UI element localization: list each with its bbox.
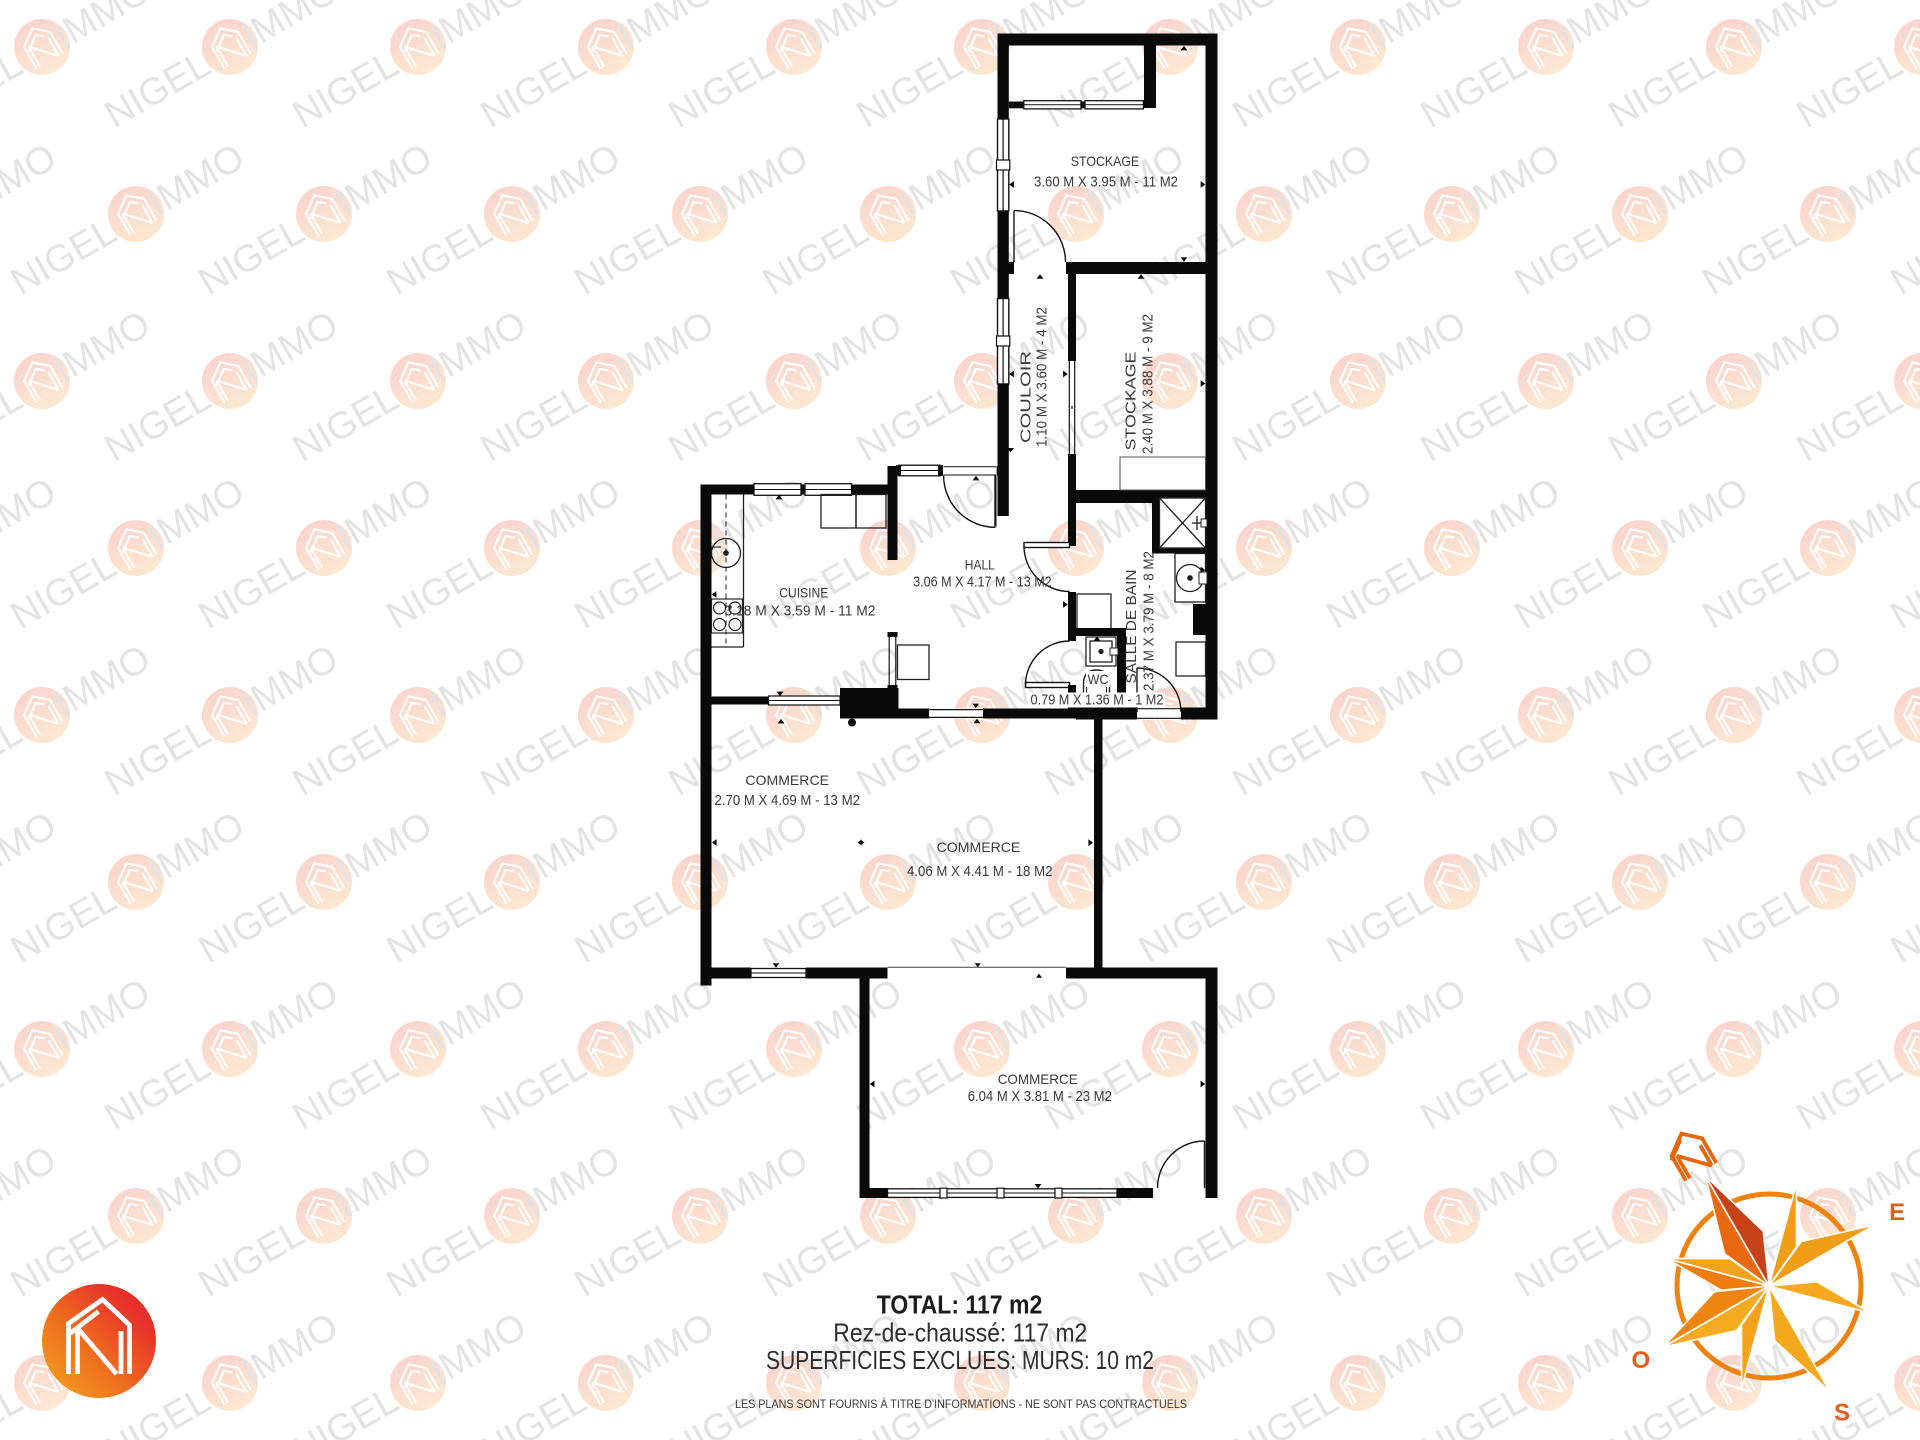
svg-text:LES PLANS SONT FOURNIS À TITRE: LES PLANS SONT FOURNIS À TITRE D'INFORMA… — [735, 1396, 1187, 1411]
svg-text:6.04 M X 3.81 M - 23 M2: 6.04 M X 3.81 M - 23 M2 — [968, 1088, 1112, 1105]
svg-text:WC: WC — [1088, 671, 1109, 687]
svg-text:HALL: HALL — [965, 557, 995, 573]
svg-text:2.37 M X 3.79 M - 8 M2: 2.37 M X 3.79 M - 8 M2 — [1141, 551, 1158, 691]
svg-text:E: E — [1889, 1199, 1905, 1226]
svg-text:2.70 M X 4.69 M - 13 M2: 2.70 M X 4.69 M - 13 M2 — [714, 792, 860, 809]
svg-text:O: O — [1631, 1347, 1650, 1374]
svg-text:SALLE DE BAIN: SALLE DE BAIN — [1123, 570, 1140, 684]
svg-text:COMMERCE: COMMERCE — [998, 1071, 1078, 1087]
svg-text:3.06 M X 4.17 M - 13 M2: 3.06 M X 4.17 M - 13 M2 — [913, 574, 1052, 591]
svg-text:Rez-de-chaussé: 117 m2: Rez-de-chaussé: 117 m2 — [833, 1318, 1087, 1348]
svg-text:0.79 M X 1.36 M - 1 M2: 0.79 M X 1.36 M - 1 M2 — [1031, 693, 1164, 709]
svg-text:CUISINE: CUISINE — [779, 585, 828, 601]
svg-text:STOCKAGE: STOCKAGE — [1071, 153, 1140, 169]
svg-text:2.40 M X 3.88 M - 9 M2: 2.40 M X 3.88 M - 9 M2 — [1140, 314, 1157, 454]
svg-text:STOCKAGE: STOCKAGE — [1123, 352, 1140, 451]
svg-text:1.10 M X 3.60 M - 4 M2: 1.10 M X 3.60 M - 4 M2 — [1034, 307, 1051, 447]
svg-text:S: S — [1834, 1399, 1850, 1426]
svg-text:3.60 M X 3.95 M - 11 M2: 3.60 M X 3.95 M - 11 M2 — [1034, 173, 1178, 190]
svg-text:COULOIR: COULOIR — [1018, 351, 1035, 443]
svg-text:COMMERCE: COMMERCE — [937, 839, 1021, 855]
svg-text:3.18 M X 3.59 M - 11 M2: 3.18 M X 3.59 M - 11 M2 — [725, 603, 876, 620]
svg-text:TOTAL: 117 m2: TOTAL: 117 m2 — [877, 1291, 1043, 1319]
svg-text:SUPERFICIES EXCLUES: MURS: 10: SUPERFICIES EXCLUES: MURS: 10 m2 — [766, 1345, 1154, 1375]
svg-text:4.06 M X 4.41 M - 18 M2: 4.06 M X 4.41 M - 18 M2 — [907, 863, 1053, 880]
svg-text:COMMERCE: COMMERCE — [745, 772, 829, 788]
